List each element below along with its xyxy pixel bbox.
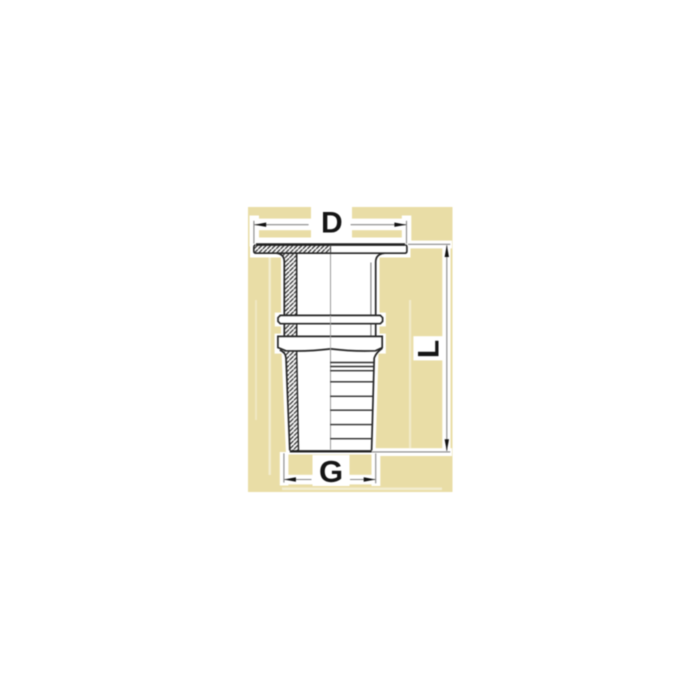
svg-text:L: L: [412, 340, 445, 358]
svg-text:G: G: [319, 454, 343, 489]
svg-text:D: D: [321, 206, 343, 239]
